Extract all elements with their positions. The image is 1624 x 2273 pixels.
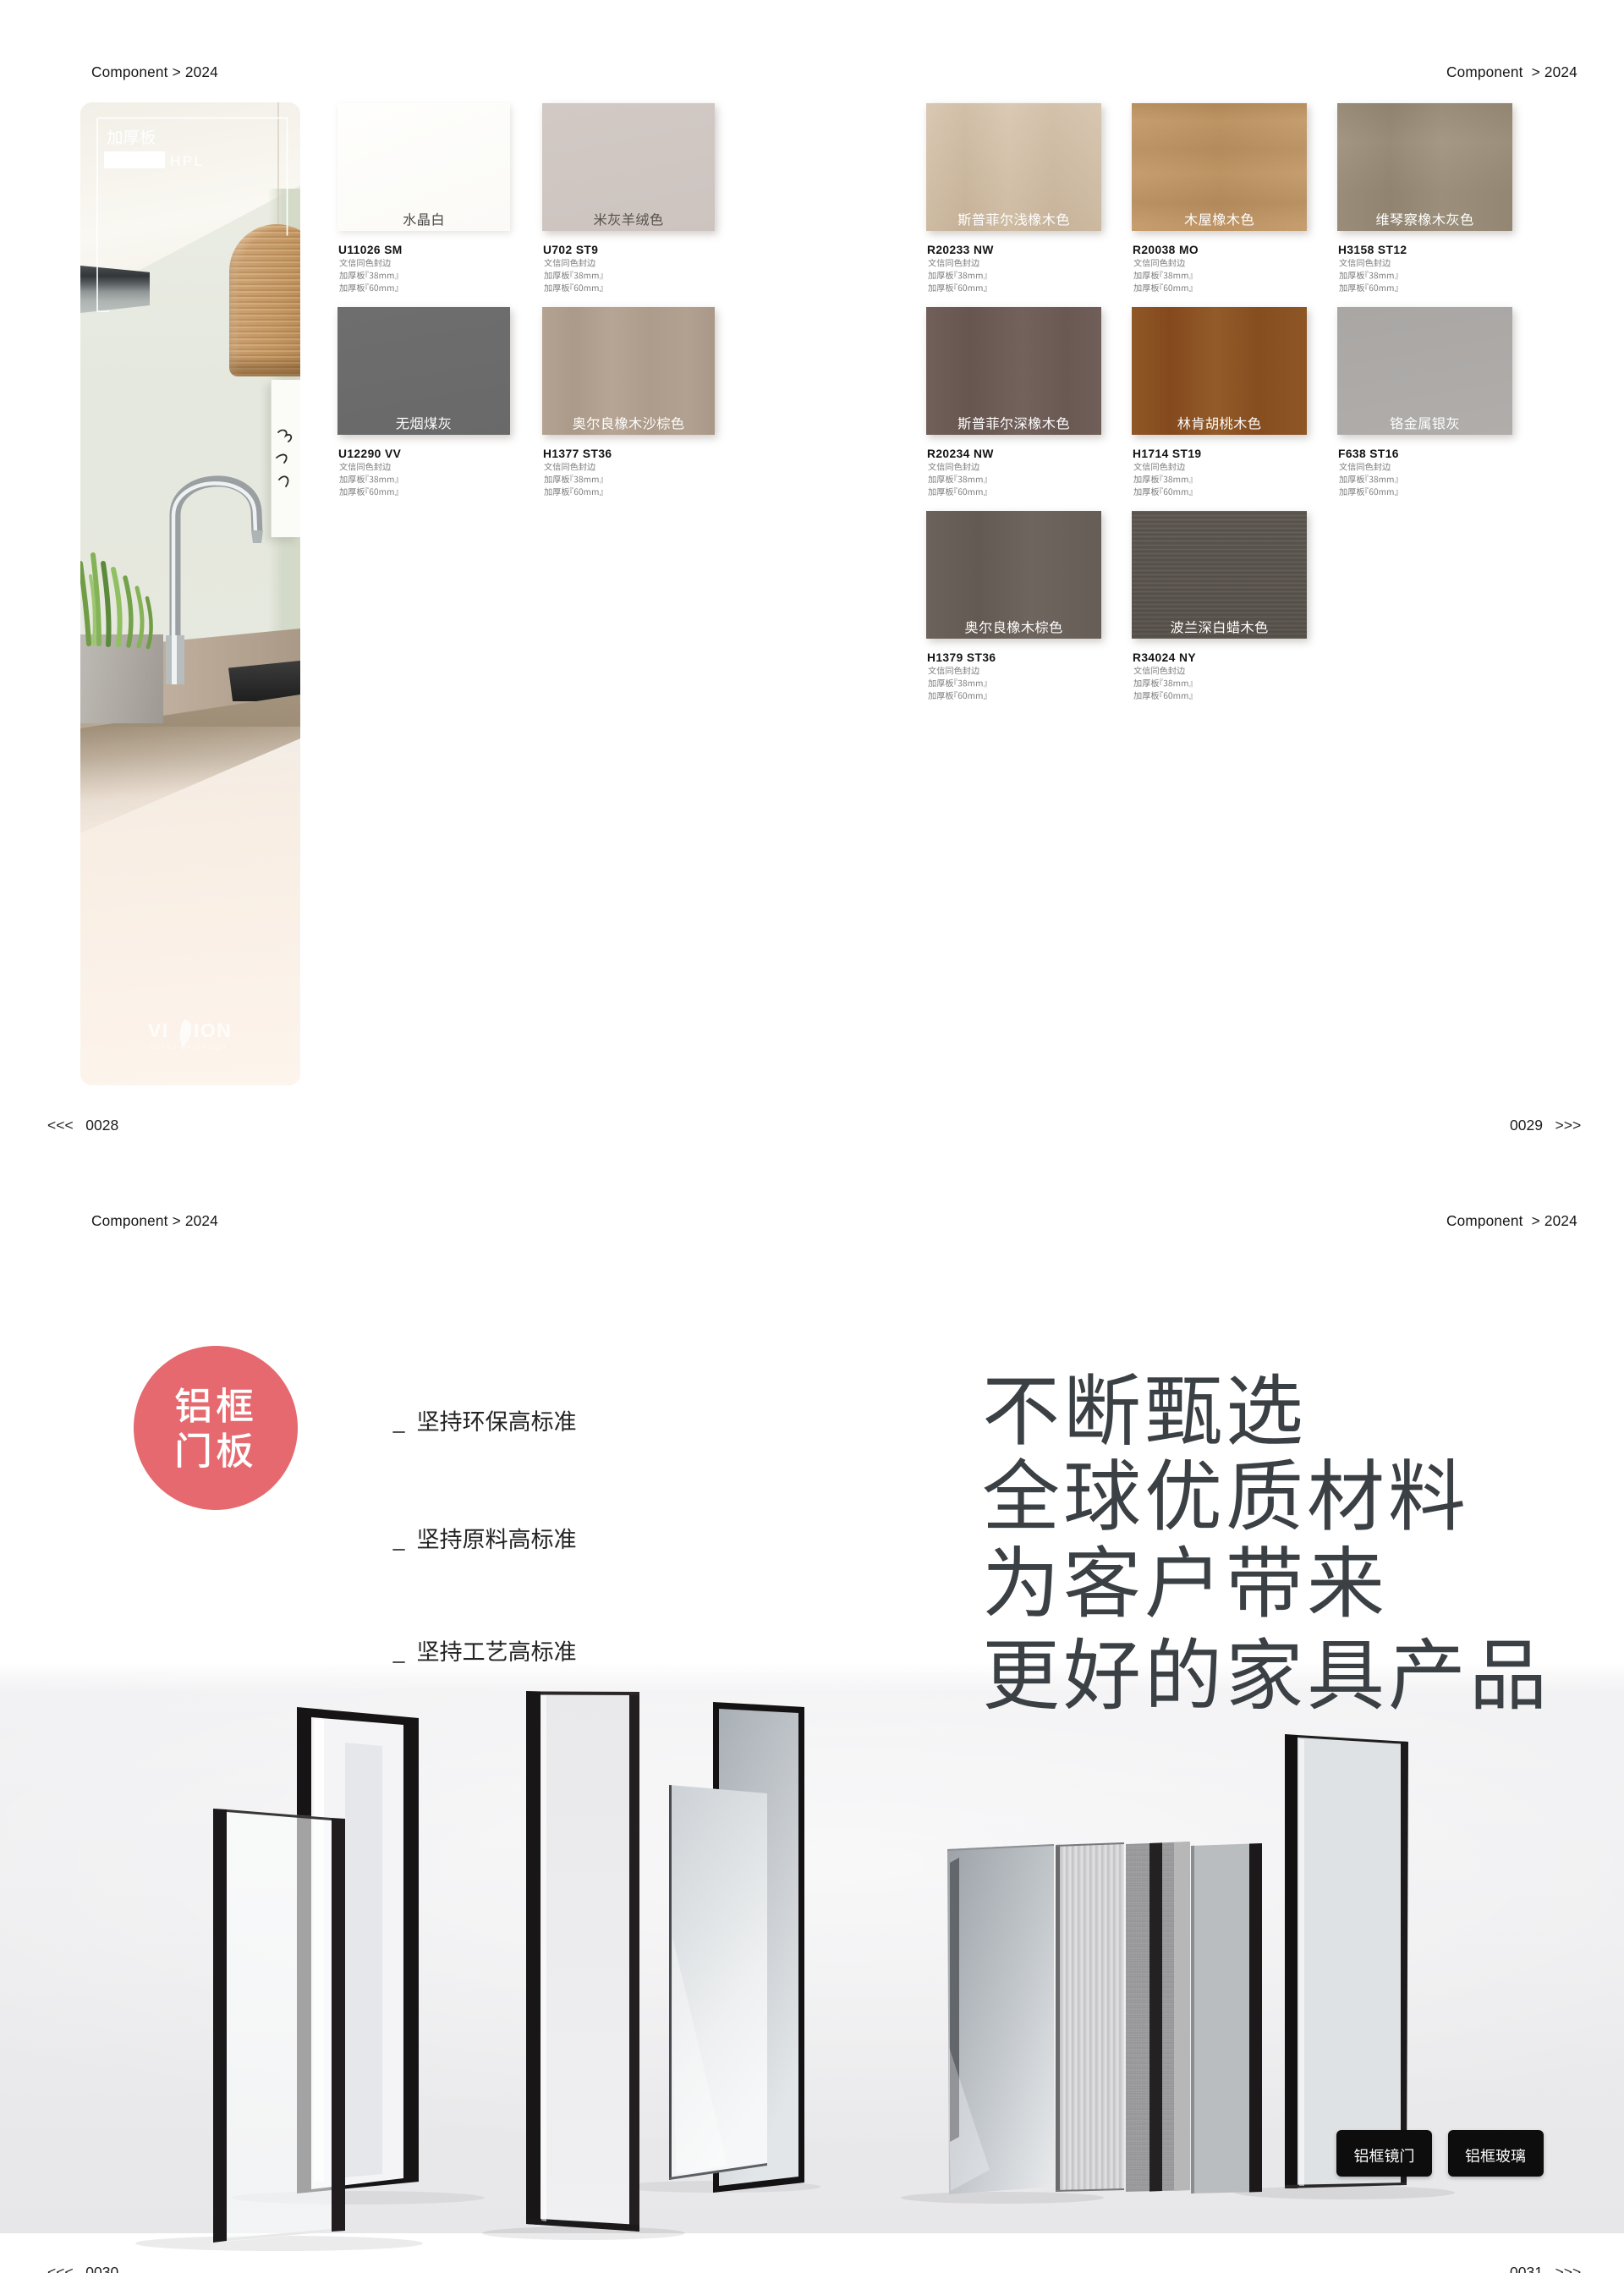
svg-text:Green by Design: Green by Design xyxy=(151,1042,228,1051)
svg-text:ION: ION xyxy=(194,1019,232,1041)
svg-text:VI: VI xyxy=(148,1019,169,1041)
